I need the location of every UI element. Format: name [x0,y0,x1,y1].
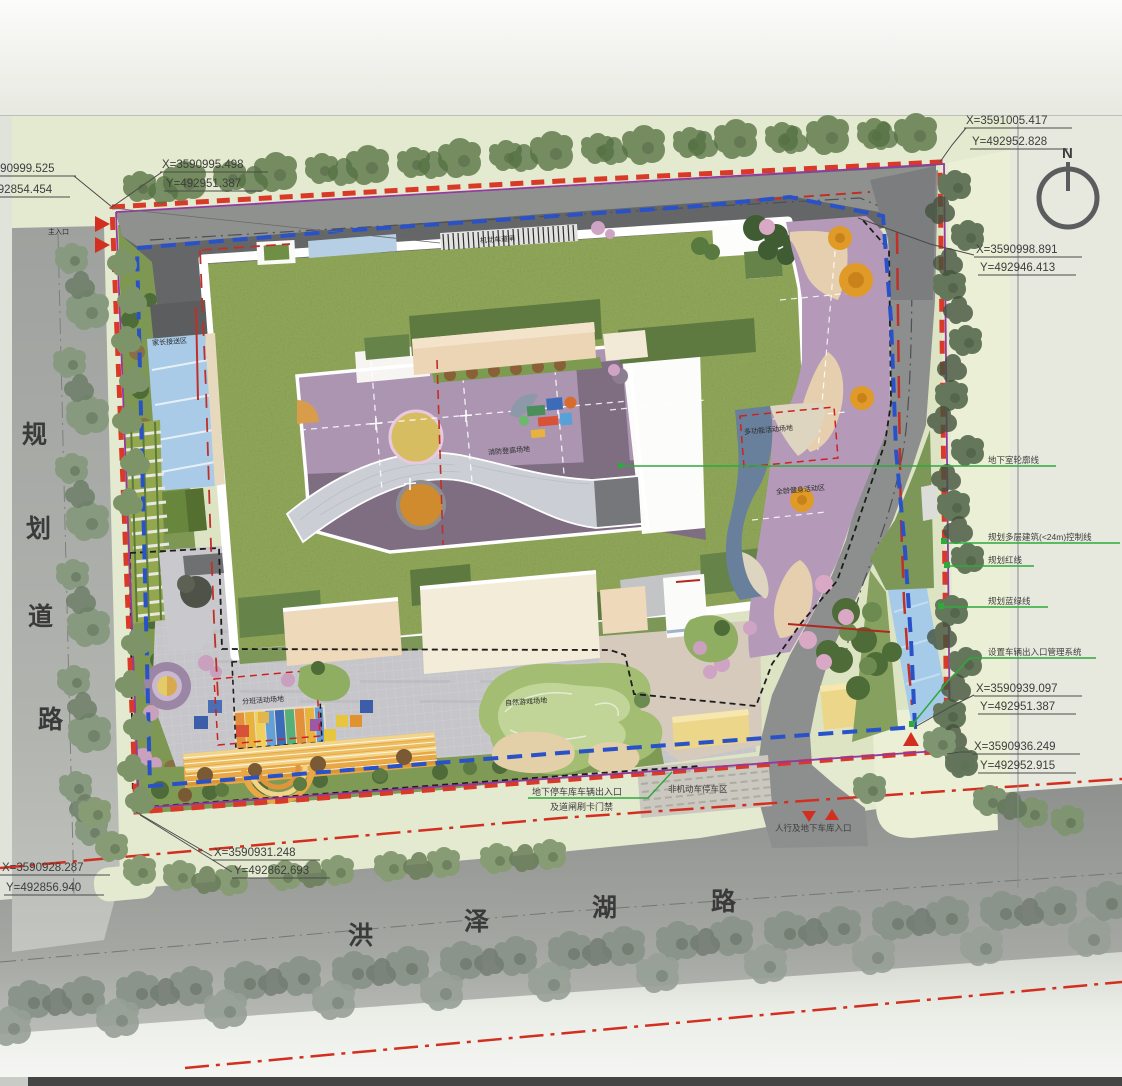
svg-text:X=3590998.891: X=3590998.891 [976,244,1058,256]
svg-text:湖: 湖 [592,894,617,922]
svg-text:X=3590928.287: X=3590928.287 [2,862,84,874]
svg-text:路: 路 [711,888,737,916]
svg-text:规划多层建筑(<24m)控制线: 规划多层建筑(<24m)控制线 [988,532,1092,542]
svg-text:规: 规 [22,421,47,449]
svg-text:道: 道 [28,602,53,631]
svg-text:X=3591005.417: X=3591005.417 [966,115,1048,127]
svg-text:非机动车停车区: 非机动车停车区 [668,784,728,794]
svg-text:Y=492862.693: Y=492862.693 [234,865,309,877]
svg-text:N: N [1062,145,1073,162]
svg-text:X=3590931.248: X=3590931.248 [214,847,296,859]
svg-text:Y=492856.940: Y=492856.940 [6,882,81,894]
svg-text:人行及地下车库入口: 人行及地下车库入口 [775,823,852,833]
svg-text:X=3590936.249: X=3590936.249 [974,741,1056,753]
svg-text:路: 路 [38,706,64,734]
svg-text:及道闸刷卡门禁: 及道闸刷卡门禁 [550,801,613,812]
svg-text:洪: 洪 [348,922,373,950]
svg-text:X=3590939.097: X=3590939.097 [976,683,1058,695]
svg-text:Y=492946.413: Y=492946.413 [980,262,1055,274]
svg-text:Y=492952.828: Y=492952.828 [972,136,1047,148]
svg-text:规划蓝绿线: 规划蓝绿线 [988,596,1031,606]
svg-text:规划红线: 规划红线 [988,555,1023,565]
svg-text:地下停车库车辆出入口: 地下停车库车辆出入口 [532,786,622,797]
svg-text:设置车辆出入口管理系统: 设置车辆出入口管理系统 [988,647,1082,657]
svg-text:划: 划 [26,515,51,543]
svg-text:X=3590999.525: X=3590999.525 [0,163,55,175]
svg-text:泽: 泽 [464,908,489,936]
svg-text:X=3590995.498: X=3590995.498 [162,159,244,171]
svg-text:Y=492951.387: Y=492951.387 [980,701,1055,713]
svg-text:地下室轮廓线: 地下室轮廓线 [988,455,1040,465]
svg-text:Y=492854.454: Y=492854.454 [0,184,53,196]
svg-text:Y=492951.387: Y=492951.387 [166,178,241,190]
svg-text:Y=492952.915: Y=492952.915 [980,760,1055,772]
svg-text:主入口: 主入口 [48,227,69,236]
